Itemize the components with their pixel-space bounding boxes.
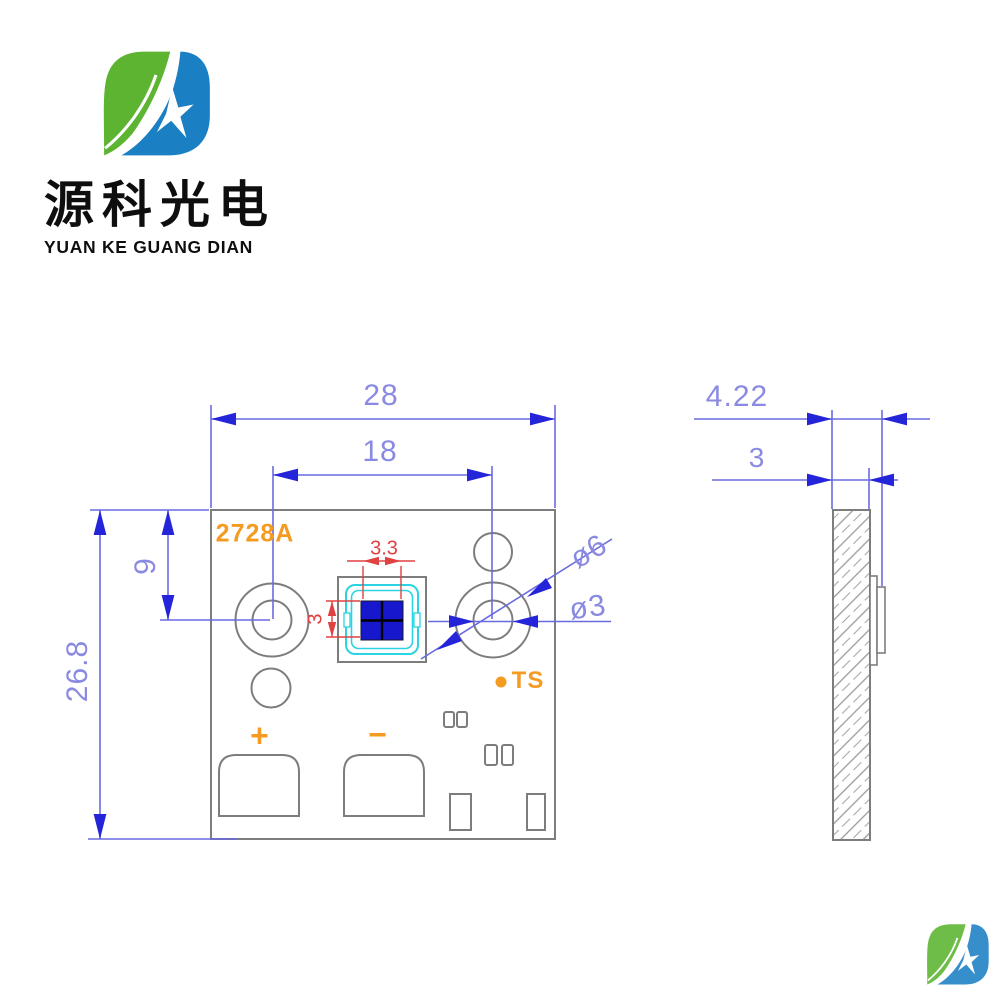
page: 源科光电 YUAN KE GUANG DIAN 28 18 26.8 9 ø6 …	[0, 0, 1000, 1000]
small-pad	[457, 712, 467, 727]
right-small-pad-circle	[474, 533, 512, 571]
small-pad	[485, 745, 497, 765]
ts-label: TS	[512, 667, 545, 695]
side-view	[833, 510, 885, 840]
led-cathode-notch	[344, 613, 350, 627]
led-emitter	[344, 585, 420, 654]
bottom-pad	[527, 794, 545, 830]
small-pad	[444, 712, 454, 727]
bottom-pad	[450, 794, 471, 830]
dim-label-board-thickness: 3	[749, 442, 766, 474]
company-name-cn: 源科光电	[44, 178, 276, 233]
dim-side-3	[712, 468, 898, 509]
positive-terminal-pad	[219, 755, 299, 816]
company-name-en: YUAN KE GUANG DIAN	[44, 237, 276, 258]
part-number-label: 2728A	[216, 520, 295, 549]
footer-logo-leaf-icon	[922, 918, 994, 992]
side-led-base	[870, 576, 877, 665]
small-pad	[502, 745, 513, 765]
dim-label-board-height: 26.8	[61, 640, 95, 702]
side-board-section	[833, 510, 870, 840]
dim-die-3	[326, 601, 360, 637]
dim-label-hole-top-offset: 9	[129, 557, 163, 575]
led-anode-notch	[414, 613, 420, 627]
brand-block: 源科光电 YUAN KE GUANG DIAN	[44, 178, 276, 258]
blue-dimensions	[88, 405, 930, 839]
negative-terminal-label: −	[368, 717, 388, 754]
positive-terminal-label: +	[250, 718, 270, 755]
dim-label-die-height: 3	[305, 613, 328, 624]
dim-label-die-width: 3.3	[370, 538, 398, 561]
negative-terminal-pad	[344, 755, 424, 816]
right-hole-inner	[474, 601, 513, 640]
left-small-pad-circle	[252, 669, 291, 708]
dim-label-hole-inner-dia: ø3	[567, 589, 608, 628]
dim-4-22	[694, 410, 930, 586]
dim-label-hole-spacing: 18	[362, 435, 397, 469]
side-led-lens	[877, 587, 885, 653]
company-logo-leaf-icon	[95, 46, 219, 163]
dim-label-total-thickness: 4.22	[706, 380, 768, 414]
ts-dot	[496, 677, 507, 688]
dim-label-board-width: 28	[363, 379, 398, 413]
